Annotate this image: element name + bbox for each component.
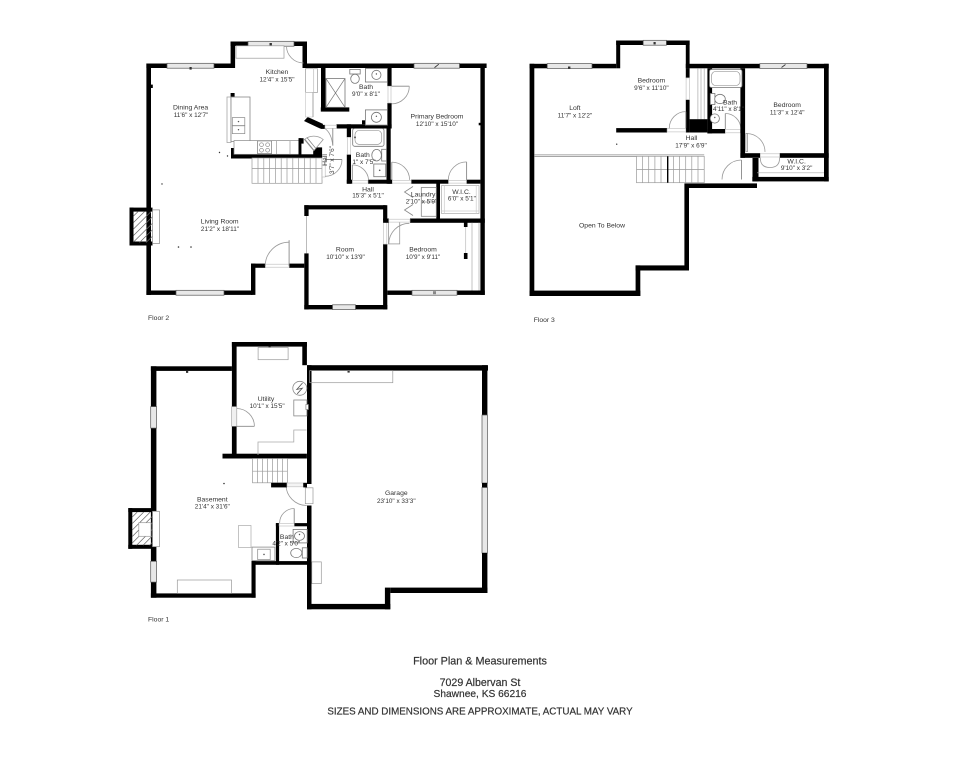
svg-text:Hall: Hall [322,154,329,166]
svg-text:Floor Plan & Measurements: Floor Plan & Measurements [413,656,547,668]
svg-text:Kitchen: Kitchen [266,69,289,76]
svg-text:Primary Bedroom: Primary Bedroom [411,114,464,121]
svg-text:9'6" x 11'10": 9'6" x 11'10" [634,85,669,92]
svg-text:Room: Room [336,247,354,254]
svg-text:Bath: Bath [359,84,373,91]
svg-text:Living Room: Living Room [201,219,239,226]
svg-text:4'2" x 5'0": 4'2" x 5'0" [272,541,300,548]
svg-text:17'9" x 6'9": 17'9" x 6'9" [675,142,707,149]
svg-text:SIZES AND DIMENSIONS ARE APPRO: SIZES AND DIMENSIONS ARE APPROXIMATE, AC… [327,707,633,718]
svg-text:10'1" x 15'5": 10'1" x 15'5" [250,403,285,410]
svg-text:Bedroom: Bedroom [638,78,666,85]
svg-text:2'10" x 5'9": 2'10" x 5'9" [406,199,438,206]
svg-text:12'4" x 15'5": 12'4" x 15'5" [259,77,294,84]
svg-text:Garage: Garage [385,490,408,497]
svg-text:Laundry: Laundry [411,192,436,199]
svg-text:11'6" x 12'7": 11'6" x 12'7" [174,112,209,119]
svg-text:Dining Area: Dining Area [173,105,208,112]
svg-text:21'2" x 18'11": 21'2" x 18'11" [201,226,239,233]
svg-text:Hall: Hall [686,135,698,142]
svg-text:11'7" x 12'2": 11'7" x 12'2" [558,112,593,119]
svg-text:3'7" x 7'6": 3'7" x 7'6" [329,146,336,174]
svg-text:10'9" x 9'11": 10'9" x 9'11" [406,254,441,261]
svg-text:Floor 2: Floor 2 [148,315,169,322]
svg-text:21'4" x 31'6": 21'4" x 31'6" [195,504,230,511]
svg-text:9'0" x 8'1": 9'0" x 8'1" [352,91,380,98]
svg-text:Open To Below: Open To Below [579,223,625,230]
svg-text:Shawnee, KS 66216: Shawnee, KS 66216 [434,689,527,700]
svg-text:9'10" x 3'2": 9'10" x 3'2" [781,165,813,172]
svg-text:4'11" x 8'1": 4'11" x 8'1" [713,106,744,113]
svg-text:10'10" x 13'9": 10'10" x 13'9" [326,254,365,261]
svg-text:7029 Albervan St: 7029 Albervan St [440,677,521,689]
svg-text:Floor 3: Floor 3 [534,317,555,324]
svg-text:12'10" x 15'10": 12'10" x 15'10" [416,121,458,128]
svg-text:Loft: Loft [569,105,580,112]
svg-text:1" x 7'5": 1" x 7'5" [352,159,375,166]
svg-text:15'3" x 5'1": 15'3" x 5'1" [352,193,384,200]
svg-text:Bath: Bath [356,152,370,159]
svg-text:Basement: Basement [197,496,228,503]
svg-text:Floor 1: Floor 1 [148,617,169,624]
svg-text:11'3" x 12'4": 11'3" x 12'4" [770,109,805,116]
svg-text:Bedroom: Bedroom [773,102,801,109]
svg-text:6'0" x 5'1": 6'0" x 5'1" [448,196,476,203]
svg-text:23'10" x 33'3": 23'10" x 33'3" [377,498,416,505]
svg-text:Bedroom: Bedroom [409,247,437,254]
